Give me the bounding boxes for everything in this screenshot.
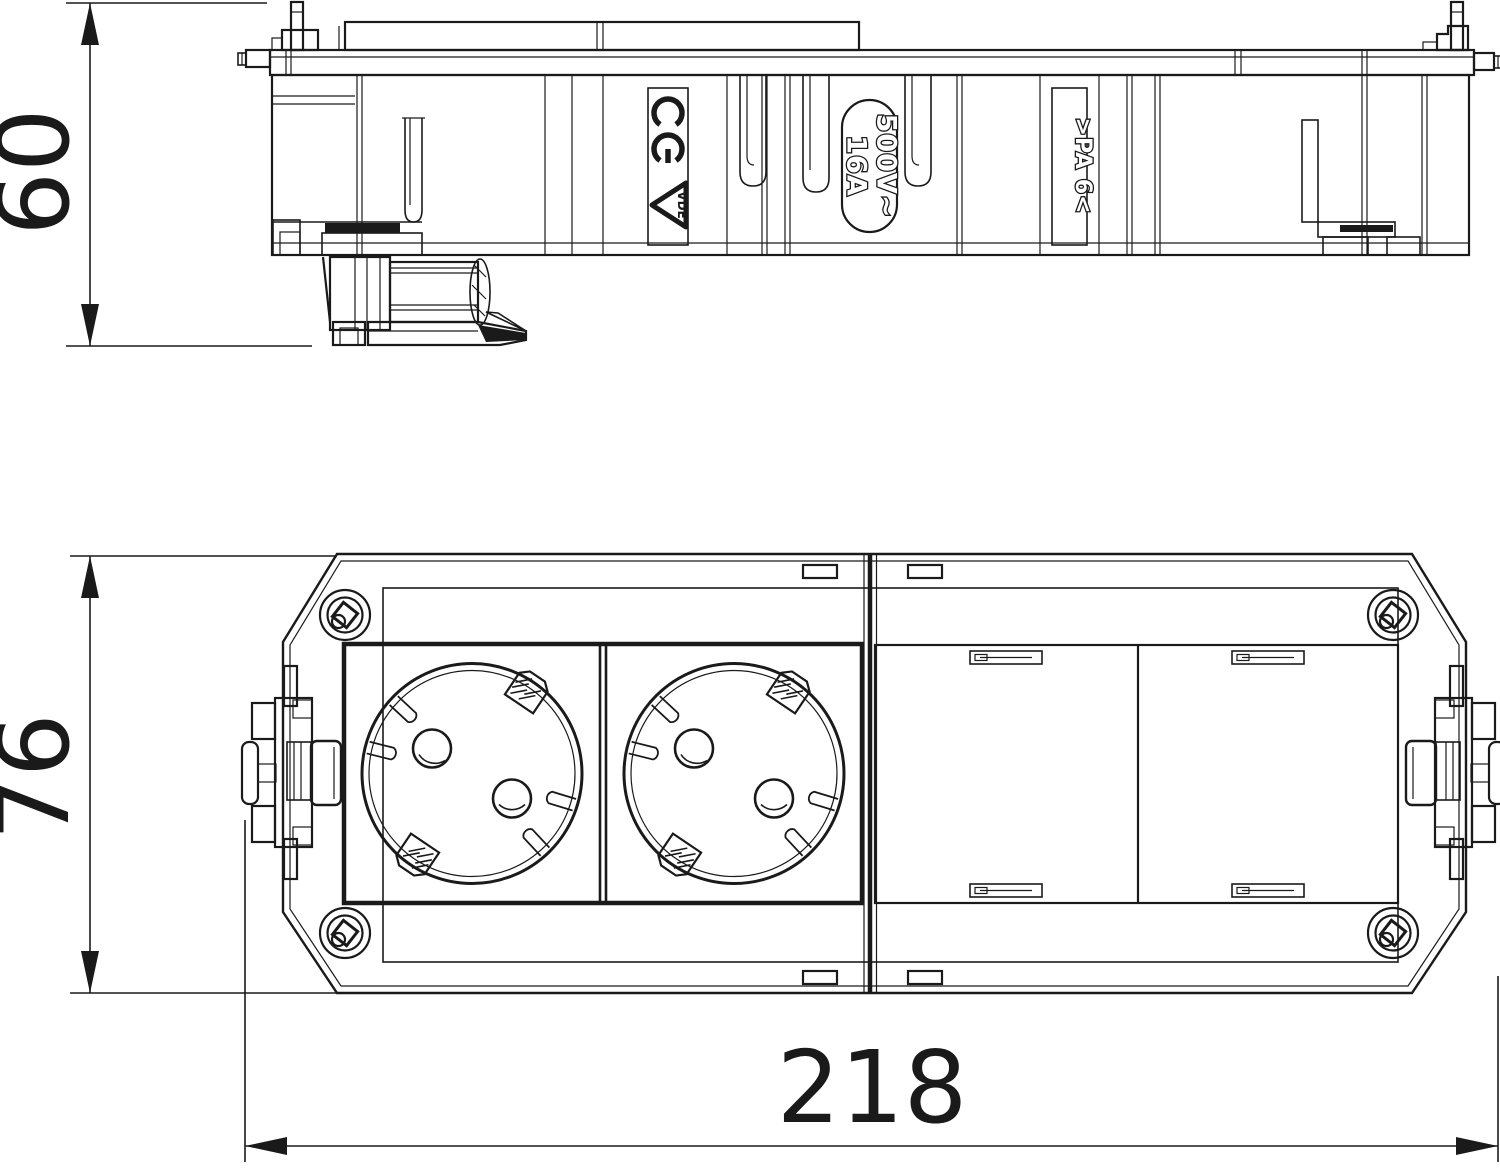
left-feet bbox=[272, 220, 422, 255]
schuko-socket-1 bbox=[362, 664, 582, 884]
rating-current-text: 16A bbox=[841, 135, 872, 196]
arrowhead-right bbox=[1456, 1137, 1498, 1155]
edge-slot bbox=[803, 971, 837, 984]
dimension-height-text: 60 bbox=[0, 108, 92, 235]
blank-module-frame bbox=[875, 645, 1398, 903]
blank-cover-slot bbox=[1232, 884, 1304, 897]
edge-slot bbox=[803, 565, 837, 578]
ce-vde-label-plate: VDE bbox=[648, 88, 689, 245]
drawing-svg: VDE 500V~ 16A >PA 6< bbox=[0, 0, 1500, 1168]
edge-slot bbox=[908, 971, 942, 984]
blank-cover-slot bbox=[1232, 651, 1304, 664]
corner-screw-top-right bbox=[1368, 590, 1418, 640]
dimension-annotations: 60 76 218 bbox=[0, 3, 1498, 1162]
dimension-height-60: 60 bbox=[0, 3, 312, 346]
right-side-latch bbox=[1406, 666, 1500, 879]
dimension-width-text: 218 bbox=[777, 1029, 968, 1146]
plan-view bbox=[242, 554, 1500, 993]
socket-module-frame bbox=[344, 644, 862, 903]
corner-screw-top-left bbox=[320, 590, 370, 640]
side-elevation-view: VDE 500V~ 16A >PA 6< bbox=[238, 2, 1500, 345]
arrowhead-up bbox=[81, 3, 99, 45]
left-levelling-screw bbox=[272, 2, 318, 50]
arrowhead-down bbox=[81, 304, 99, 346]
material-text: >PA 6< bbox=[1070, 118, 1095, 215]
corner-screw-bottom-right bbox=[1368, 908, 1418, 958]
material-label: >PA 6< bbox=[1052, 88, 1095, 245]
right-levelling-screw bbox=[1423, 2, 1468, 50]
blank-cover-slot bbox=[970, 884, 1042, 897]
left-side-latch bbox=[242, 666, 341, 879]
right-bay-bracket bbox=[1302, 120, 1420, 255]
arrowhead-left bbox=[245, 1137, 287, 1155]
vde-mark-icon: VDE bbox=[652, 183, 689, 227]
schuko-socket-2 bbox=[624, 664, 844, 884]
blank-cover-slot bbox=[970, 651, 1042, 664]
arrowhead-up bbox=[81, 556, 99, 598]
rating-voltage-text: 500V~ bbox=[871, 114, 902, 219]
edge-slot bbox=[908, 565, 942, 578]
right-side-screw bbox=[1474, 53, 1500, 70]
dimension-depth-text: 76 bbox=[0, 713, 92, 840]
left-slot-channel bbox=[402, 118, 425, 222]
vde-mark-text: VDE bbox=[675, 191, 689, 218]
arrowhead-down bbox=[81, 951, 99, 993]
top-flange bbox=[270, 50, 1474, 75]
corner-screw-bottom-left bbox=[320, 908, 370, 958]
technical-drawing-page: VDE 500V~ 16A >PA 6< bbox=[0, 0, 1500, 1168]
rating-label: 500V~ 16A bbox=[841, 100, 902, 232]
mounting-bracket bbox=[323, 257, 526, 345]
ce-mark-icon bbox=[654, 99, 682, 163]
cover-lid bbox=[345, 22, 859, 50]
left-side-screw bbox=[238, 50, 270, 67]
